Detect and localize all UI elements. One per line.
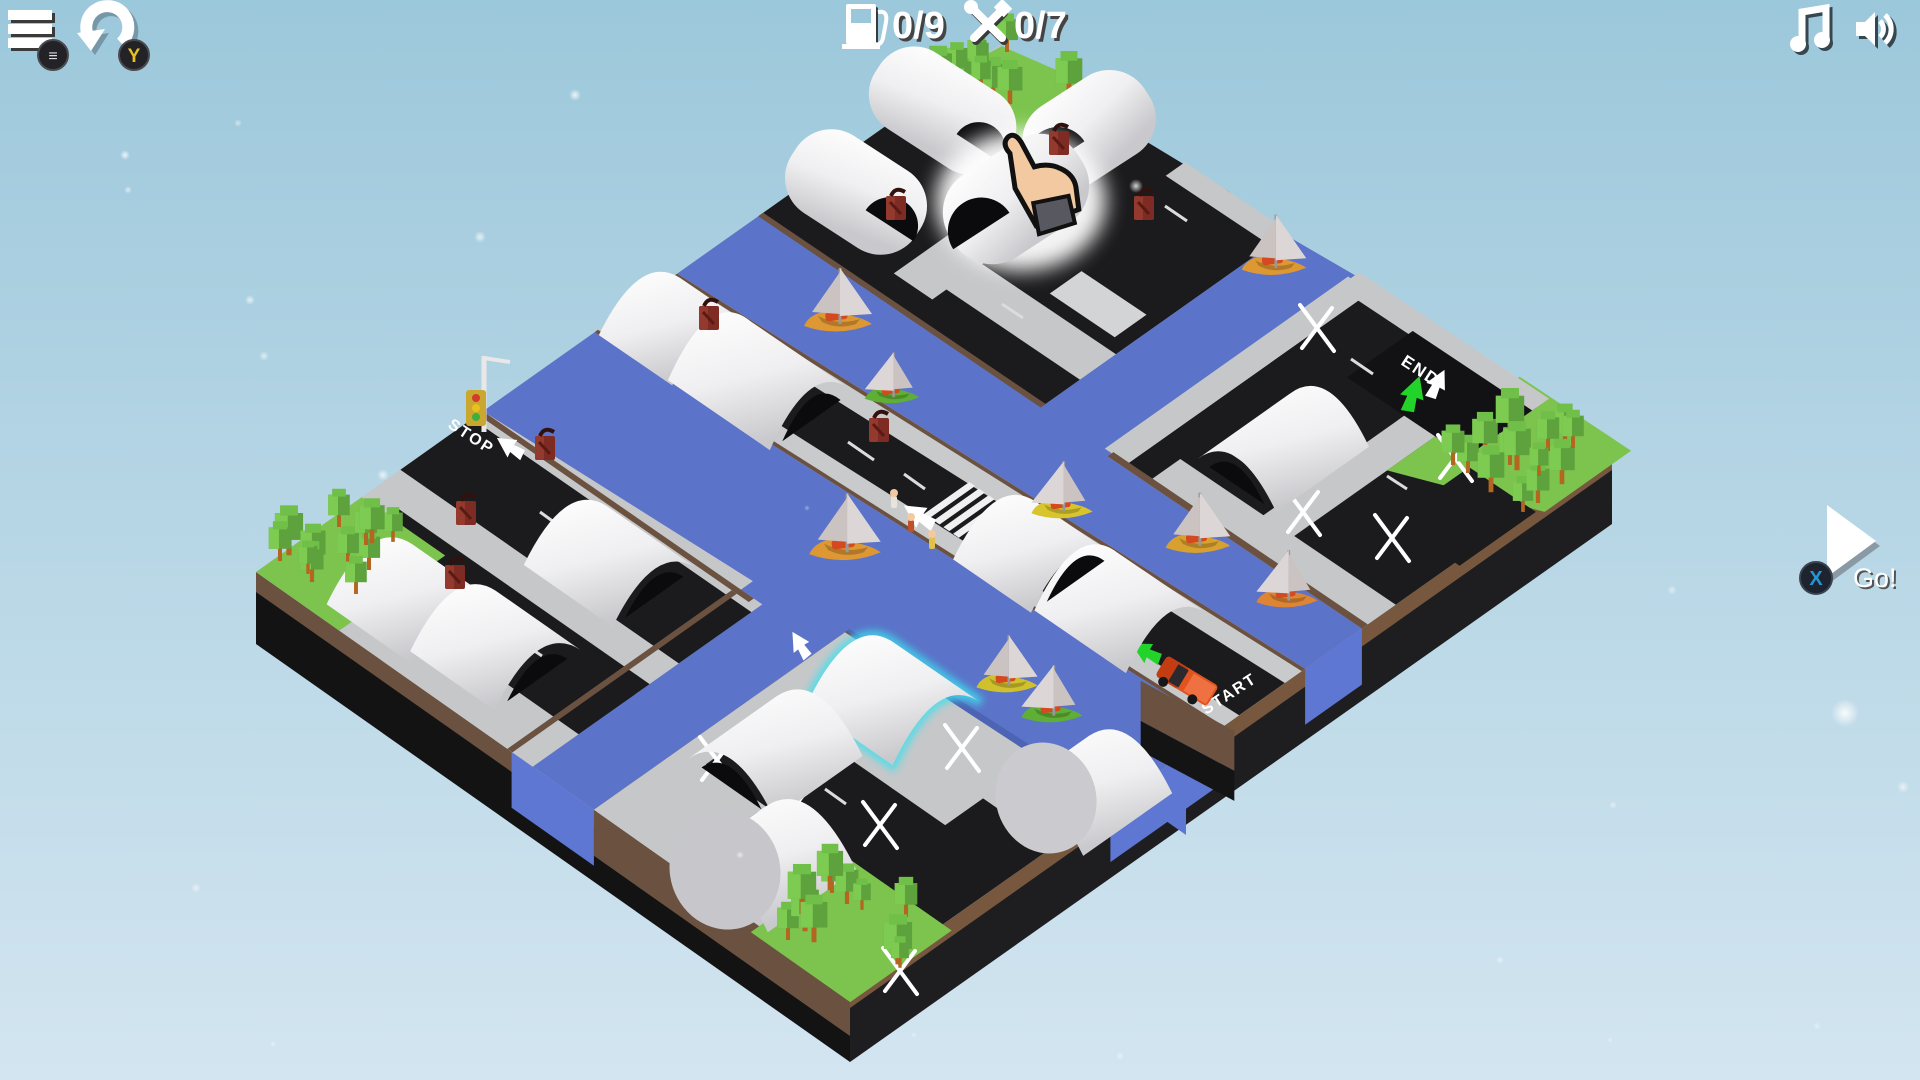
svg-text:0/7: 0/7 [1014,5,1067,47]
svg-text:X: X [1809,568,1823,590]
svg-text:≡: ≡ [48,48,57,65]
svg-text:0/9: 0/9 [892,5,945,47]
svg-text:Go!: Go! [1853,563,1897,593]
svg-text:Y: Y [128,46,141,67]
